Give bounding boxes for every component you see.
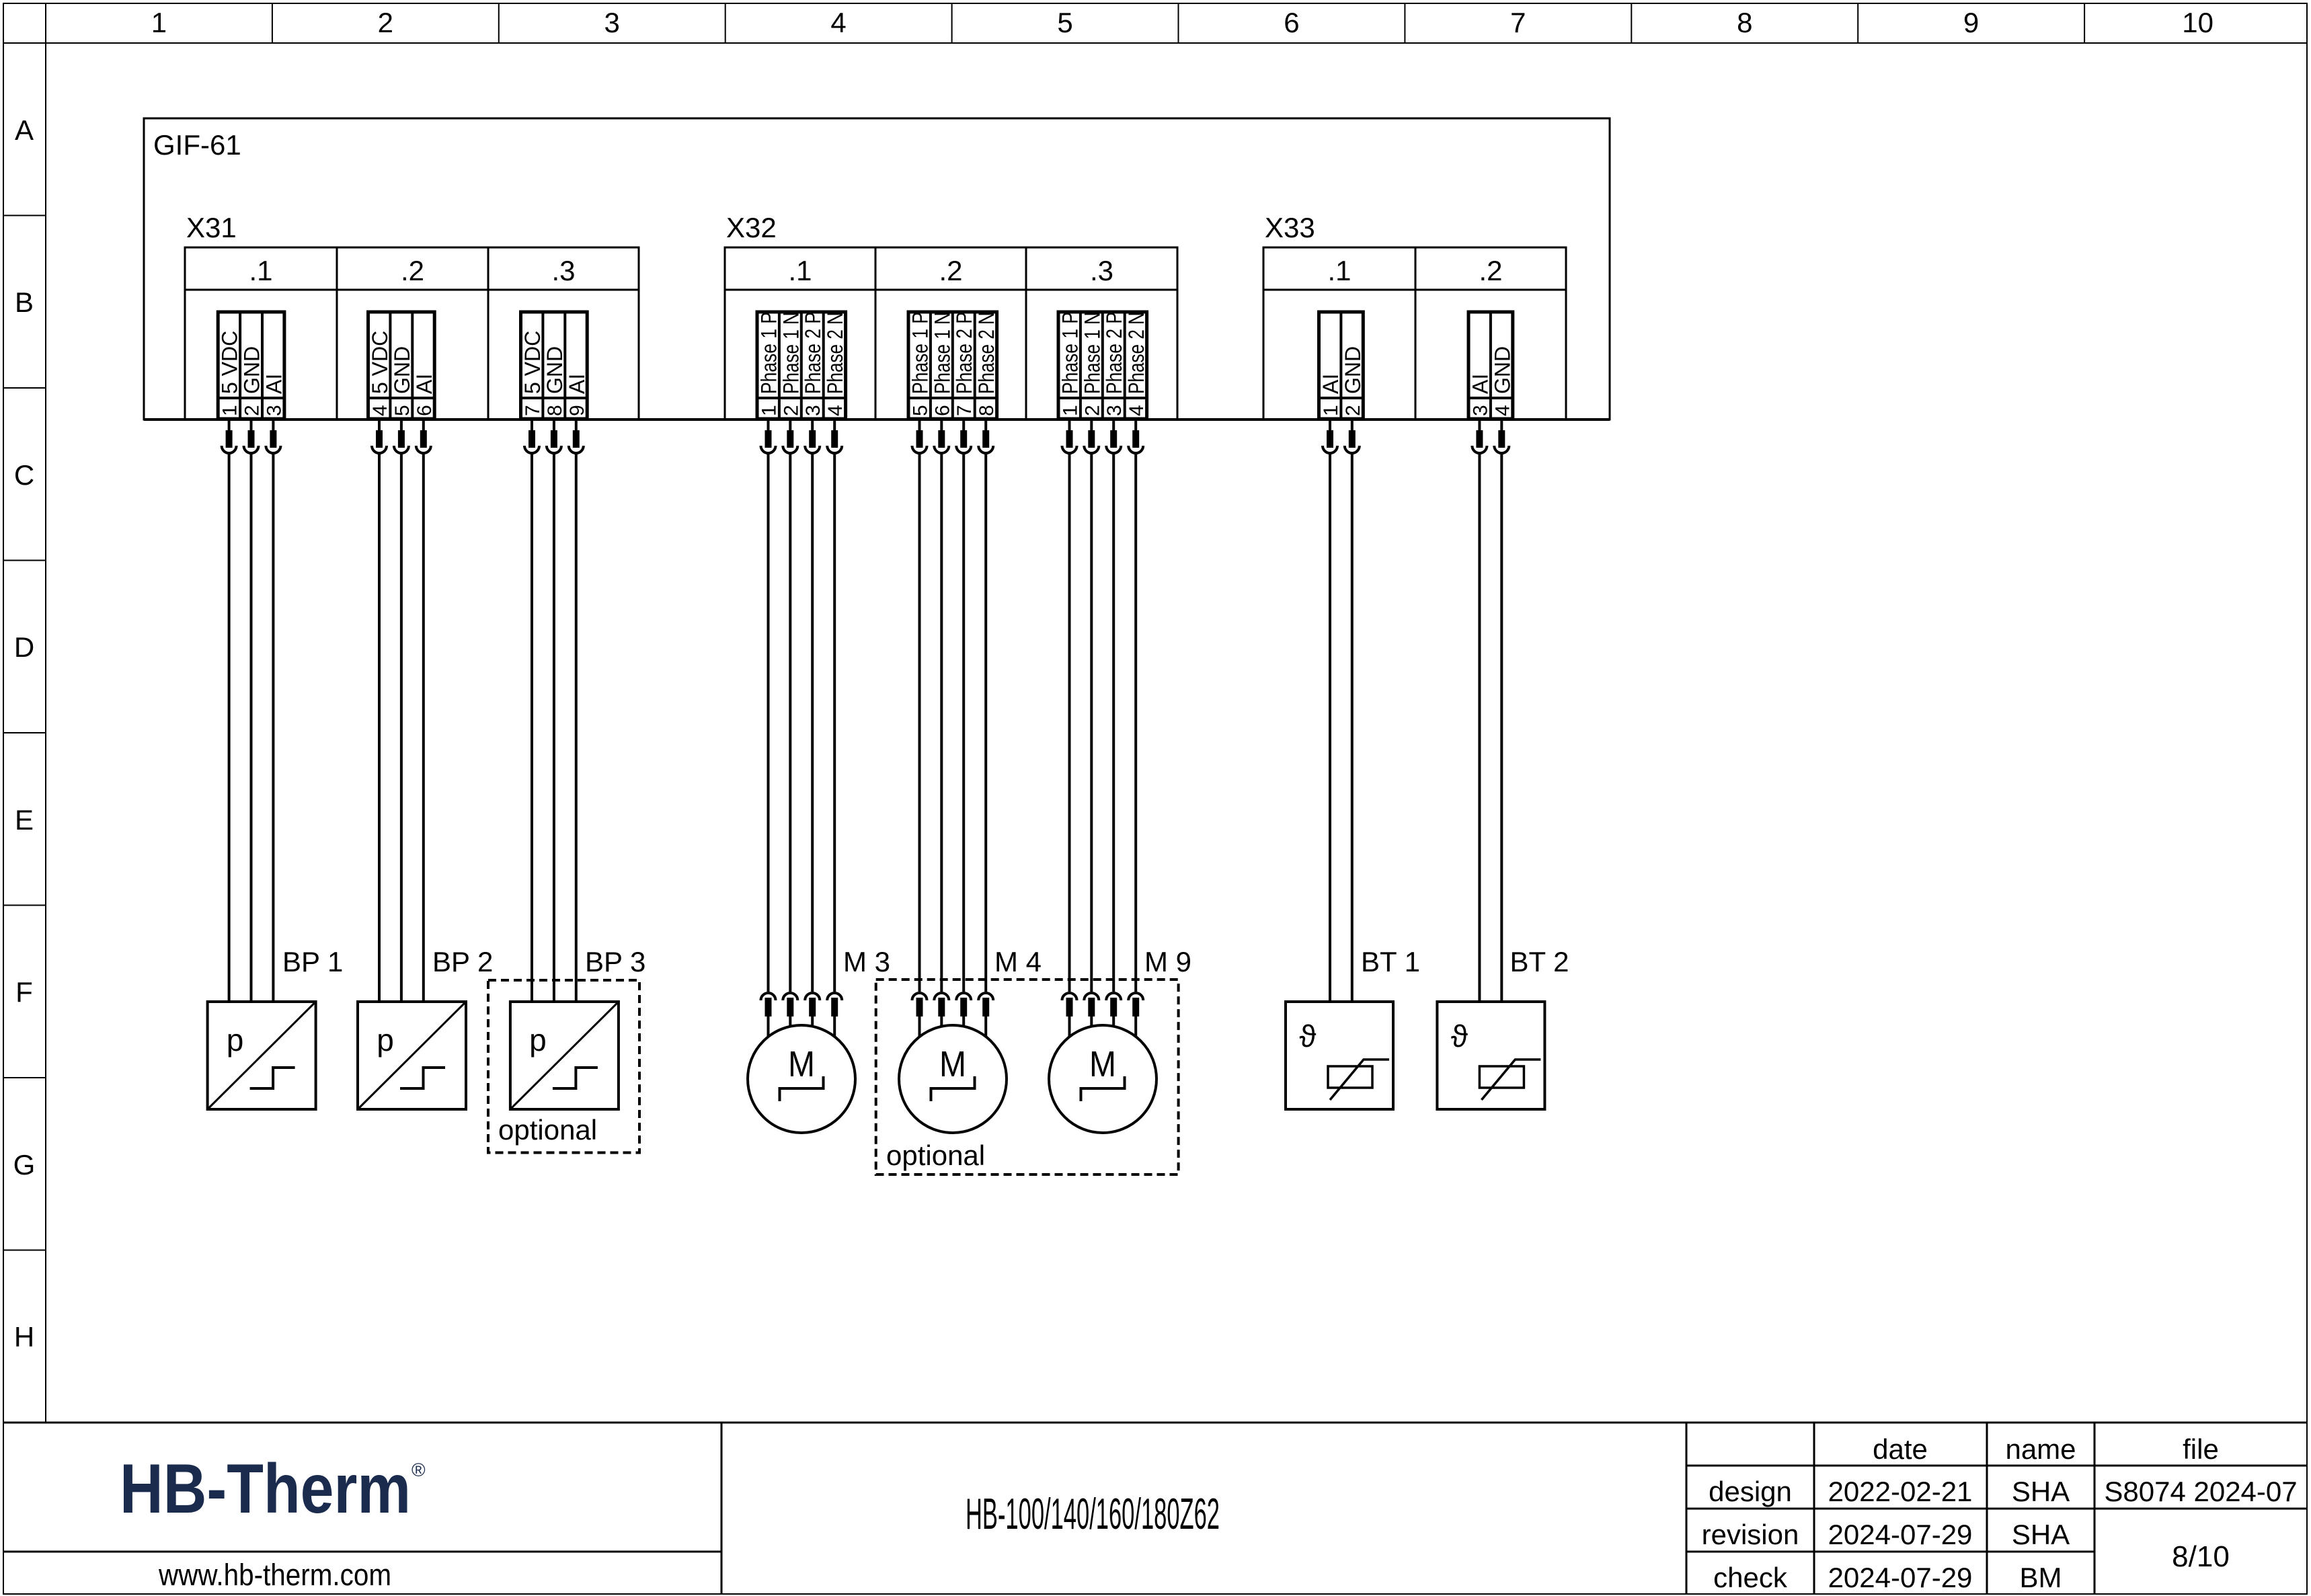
- svg-text:D: D: [14, 631, 34, 663]
- svg-text:.3: .3: [551, 255, 575, 286]
- svg-text:4: 4: [1491, 405, 1514, 416]
- svg-text:2: 2: [378, 7, 393, 38]
- svg-text:1: 1: [1320, 405, 1342, 416]
- svg-text:E: E: [15, 804, 34, 836]
- svg-text:4: 4: [369, 405, 391, 416]
- svg-text:G: G: [13, 1149, 36, 1181]
- svg-text:M: M: [939, 1044, 966, 1084]
- svg-text:2: 2: [780, 405, 802, 416]
- svg-text:X31: X31: [186, 212, 237, 243]
- svg-text:1: 1: [758, 405, 781, 416]
- svg-text:10: 10: [2182, 7, 2214, 38]
- svg-text:M: M: [1089, 1044, 1116, 1084]
- svg-text:Phase 1 N: Phase 1 N: [779, 312, 803, 394]
- svg-text:1: 1: [151, 7, 167, 38]
- svg-text:3: 3: [263, 405, 285, 416]
- svg-text:Phase 2 P: Phase 2 P: [801, 312, 825, 394]
- svg-text:8: 8: [544, 405, 566, 416]
- svg-text:2024-07-29: 2024-07-29: [1828, 1519, 1973, 1550]
- svg-text:GIF-61: GIF-61: [153, 129, 241, 161]
- svg-text:5: 5: [1057, 7, 1072, 38]
- svg-text:SHA: SHA: [2012, 1476, 2070, 1507]
- svg-text:optional: optional: [498, 1114, 597, 1146]
- svg-text:GND: GND: [543, 346, 567, 394]
- svg-text:Phase 1 P: Phase 1 P: [1058, 312, 1083, 394]
- svg-text:AI: AI: [1468, 374, 1492, 394]
- svg-text:M 4: M 4: [994, 946, 1042, 977]
- svg-text:5: 5: [391, 405, 414, 416]
- svg-text:.1: .1: [1327, 255, 1351, 286]
- svg-text:2022-02-21: 2022-02-21: [1828, 1476, 1973, 1507]
- svg-text:6: 6: [931, 405, 953, 416]
- svg-text:ϑ: ϑ: [1299, 1019, 1316, 1053]
- svg-text:3: 3: [604, 7, 620, 38]
- svg-text:M: M: [788, 1044, 815, 1084]
- svg-text:.3: .3: [1090, 255, 1113, 286]
- svg-text:1: 1: [219, 405, 241, 416]
- svg-text:X33: X33: [1265, 212, 1315, 243]
- svg-text:.2: .2: [1479, 255, 1502, 286]
- svg-text:date: date: [1873, 1433, 1928, 1465]
- svg-text:Phase 1 P: Phase 1 P: [757, 312, 781, 394]
- svg-text:2: 2: [1342, 405, 1364, 416]
- svg-text:p: p: [377, 1023, 394, 1058]
- svg-text:ϑ: ϑ: [1451, 1019, 1468, 1053]
- svg-text:3: 3: [1469, 405, 1491, 416]
- svg-text:check: check: [1713, 1562, 1788, 1593]
- svg-text:name: name: [2005, 1433, 2076, 1465]
- svg-text:2: 2: [241, 405, 264, 416]
- svg-text:8/10: 8/10: [2172, 1540, 2230, 1573]
- svg-text:BT 1: BT 1: [1361, 946, 1420, 977]
- svg-text:GND: GND: [1490, 346, 1514, 394]
- svg-text:7: 7: [522, 405, 544, 416]
- svg-text:.1: .1: [249, 255, 272, 286]
- svg-text:2: 2: [1081, 405, 1103, 416]
- svg-text:BP 2: BP 2: [432, 946, 493, 977]
- svg-text:GND: GND: [240, 346, 264, 394]
- svg-text:p: p: [529, 1023, 547, 1058]
- svg-text:Phase 2 P: Phase 2 P: [952, 312, 976, 394]
- svg-text:BP 3: BP 3: [585, 946, 645, 977]
- svg-text:5 VDC: 5 VDC: [218, 331, 242, 394]
- svg-text:p: p: [227, 1023, 244, 1058]
- svg-text:Phase 2 N: Phase 2 N: [974, 312, 998, 394]
- svg-text:design: design: [1709, 1476, 1792, 1507]
- svg-text:Phase 2 P: Phase 2 P: [1102, 312, 1126, 394]
- svg-text:.2: .2: [401, 255, 424, 286]
- svg-text:5 VDC: 5 VDC: [368, 331, 392, 394]
- svg-text:.2: .2: [939, 255, 962, 286]
- svg-text:B: B: [15, 286, 34, 318]
- svg-text:4: 4: [824, 405, 847, 416]
- svg-text:X32: X32: [726, 212, 777, 243]
- svg-text:5 VDC: 5 VDC: [520, 331, 545, 394]
- svg-text:6: 6: [414, 405, 436, 416]
- svg-text:9: 9: [1963, 7, 1979, 38]
- svg-text:Phase 1 P: Phase 1 P: [908, 312, 933, 394]
- svg-text:2024-07-29: 2024-07-29: [1828, 1562, 1973, 1593]
- svg-text:M 9: M 9: [1144, 946, 1191, 977]
- svg-text:Phase 1 N: Phase 1 N: [930, 312, 954, 394]
- svg-text:4: 4: [830, 7, 846, 38]
- svg-text:optional: optional: [886, 1140, 985, 1171]
- svg-text:BT 2: BT 2: [1510, 946, 1569, 977]
- svg-text:AI: AI: [262, 374, 286, 394]
- svg-text:Phase 2 N: Phase 2 N: [1124, 312, 1148, 394]
- svg-text:4: 4: [1126, 405, 1148, 416]
- svg-text:9: 9: [566, 405, 588, 416]
- svg-text:www.hb-therm.com: www.hb-therm.com: [158, 1558, 391, 1592]
- svg-text:A: A: [15, 114, 34, 146]
- svg-text:3: 3: [1103, 405, 1126, 416]
- svg-text:AI: AI: [1319, 374, 1343, 394]
- svg-text:®: ®: [412, 1460, 426, 1480]
- svg-text:7: 7: [953, 405, 976, 416]
- svg-text:revision: revision: [1702, 1519, 1799, 1550]
- svg-text:5: 5: [910, 405, 932, 416]
- svg-text:file: file: [2183, 1433, 2219, 1465]
- svg-text:AI: AI: [412, 374, 436, 394]
- svg-text:BP 1: BP 1: [282, 946, 343, 977]
- svg-text:HB-100/140/160/180Z62: HB-100/140/160/180Z62: [966, 1489, 1220, 1538]
- svg-text:M 3: M 3: [843, 946, 890, 977]
- svg-text:HB-Therm: HB-Therm: [120, 1450, 411, 1528]
- svg-text:SHA: SHA: [2012, 1519, 2070, 1550]
- svg-text:1: 1: [1060, 405, 1082, 416]
- svg-text:GND: GND: [1341, 346, 1365, 394]
- svg-text:H: H: [14, 1321, 34, 1353]
- svg-text:3: 3: [802, 405, 824, 416]
- svg-text:Phase 1 N: Phase 1 N: [1080, 312, 1104, 394]
- svg-text:BM: BM: [2020, 1562, 2062, 1593]
- svg-text:8: 8: [1737, 7, 1752, 38]
- svg-text:AI: AI: [565, 374, 589, 394]
- svg-text:F: F: [15, 976, 33, 1008]
- svg-text:7: 7: [1510, 7, 1526, 38]
- svg-text:.1: .1: [788, 255, 812, 286]
- svg-text:S8074 2024-07: S8074 2024-07: [2104, 1476, 2297, 1507]
- svg-text:C: C: [14, 459, 34, 491]
- svg-text:8: 8: [976, 405, 998, 416]
- svg-text:6: 6: [1284, 7, 1299, 38]
- svg-text:GND: GND: [390, 346, 414, 394]
- svg-text:Phase 2 N: Phase 2 N: [823, 312, 847, 394]
